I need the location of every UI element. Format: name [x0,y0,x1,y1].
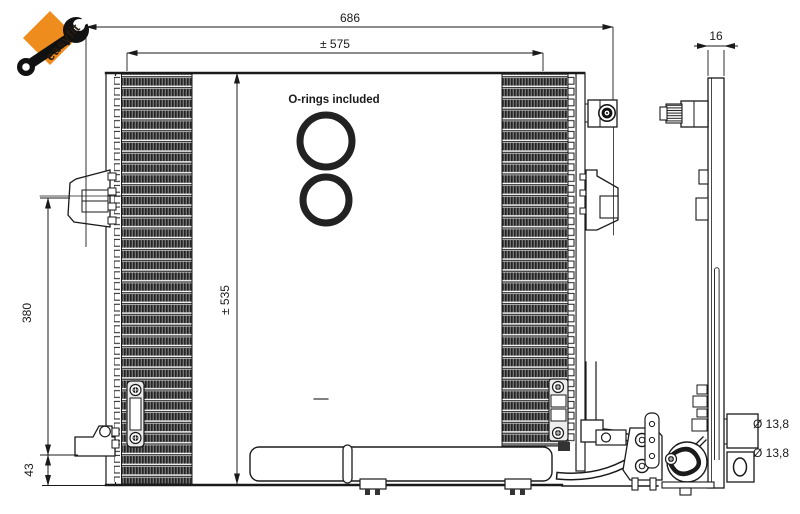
easyfit-logo: easyfit [17,11,91,76]
right-mounting-bracket [580,127,618,235]
oring-large [300,115,352,167]
dim-core-width: ± 575 [320,37,350,51]
receiver-dryer [250,445,552,495]
side-bottom-steps [692,385,707,431]
dim-mount-height: 380 [20,303,34,323]
dim-core-height: ± 535 [218,285,232,315]
right-valve-block [549,379,568,441]
dim-overall-width: 686 [340,11,360,25]
side-connector [660,101,708,127]
technical-drawing-page: easyfit [0,0,800,514]
left-top-bracket [40,170,122,227]
oring-small [303,177,349,223]
side-tab-upper [699,170,708,184]
condenser-drawing: easyfit [0,0,800,514]
orings-annotation: O-rings included [288,94,379,223]
left-bottom-bracket [75,426,119,456]
right-side-plate [576,73,585,471]
right-fin-edge [568,76,576,444]
dim-depth: 16 [709,29,723,43]
left-service-plate [127,381,144,447]
dim-port-top: Ø 13,8 [753,417,789,431]
orings-note-text: O-rings included [288,94,379,106]
side-foot-mount [662,438,714,495]
side-view [645,78,758,495]
left-fin-edge [114,76,122,482]
side-profile-bar [708,78,724,488]
side-tab-lower [696,198,708,220]
top-right-connector [585,100,617,127]
dim-port-bottom: Ø 13,8 [753,446,789,460]
side-small-bracket [645,413,659,468]
dim-bottom-offset: 43 [22,463,36,477]
port-fitting-icon [599,105,615,121]
